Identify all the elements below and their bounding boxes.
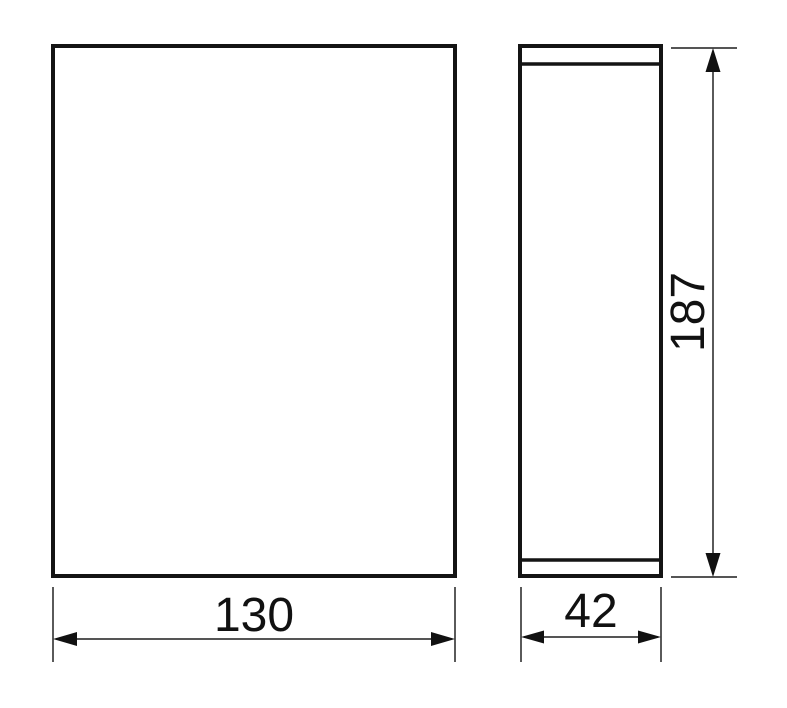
width-dimension-label: 130 — [214, 589, 294, 642]
front-view-outline — [53, 46, 455, 576]
height-dimension: 187 — [662, 48, 737, 577]
arrow-up-icon — [706, 48, 721, 72]
drawing-canvas: 130 42 187 — [0, 0, 787, 708]
arrow-right-icon — [431, 632, 455, 646]
width-dimension: 130 — [53, 587, 455, 662]
height-dimension-label: 187 — [662, 272, 715, 352]
arrow-down-icon — [706, 553, 721, 577]
depth-dimension-label: 42 — [564, 585, 617, 638]
side-view-outline — [520, 46, 661, 576]
arrow-left-icon — [53, 632, 77, 646]
arrow-left-icon — [521, 631, 544, 644]
arrow-right-icon — [638, 631, 661, 644]
depth-dimension: 42 — [521, 585, 661, 662]
dimension-drawing: 130 42 187 — [0, 0, 787, 708]
